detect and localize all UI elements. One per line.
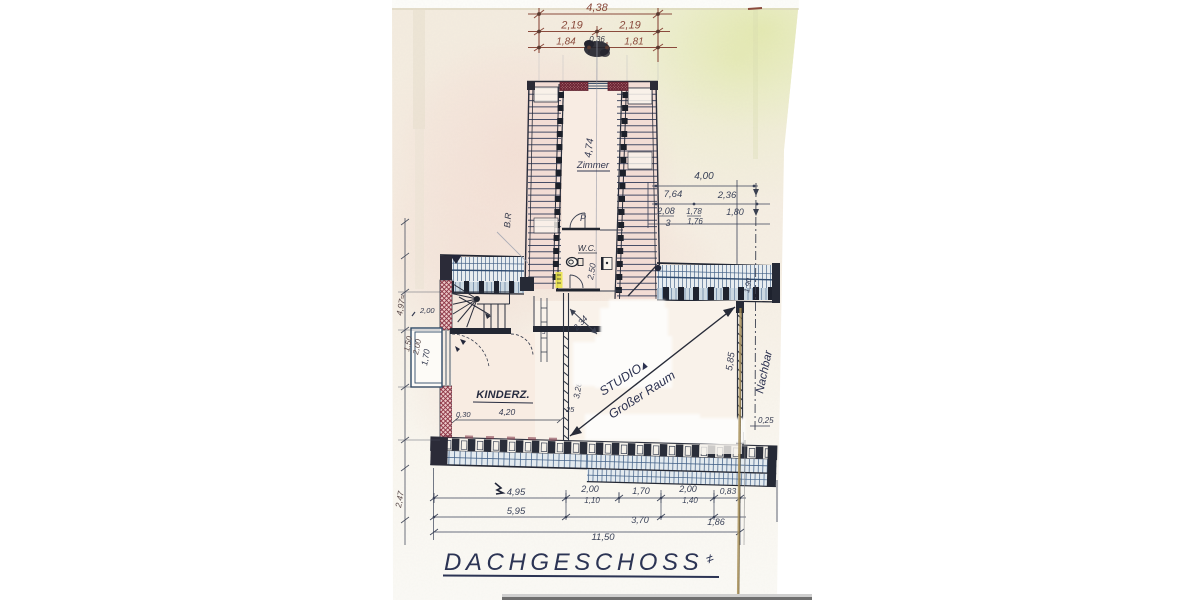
svg-text:2,19: 2,19 — [560, 20, 582, 32]
svg-text:KINDERZ.: KINDERZ. — [476, 389, 530, 401]
svg-text:11,50: 11,50 — [591, 532, 615, 543]
svg-text:2,19: 2,19 — [618, 20, 640, 32]
svg-text:2,00: 2,00 — [419, 306, 435, 315]
svg-text:1,81: 1,81 — [624, 37, 643, 48]
svg-text:1,76: 1,76 — [687, 217, 703, 226]
svg-text:0,25: 0,25 — [758, 416, 774, 425]
svg-text:2,00: 2,00 — [678, 484, 697, 494]
svg-text:1,84: 1,84 — [556, 37, 576, 48]
svg-text:0,83: 0,83 — [720, 486, 737, 496]
svg-text:3: 3 — [665, 218, 670, 228]
svg-text:B.R: B.R — [502, 212, 513, 228]
svg-text:2,36: 2,36 — [717, 190, 737, 201]
svg-text:Zimmer: Zimmer — [576, 160, 610, 171]
svg-text:4,00: 4,00 — [694, 171, 714, 182]
svg-text:25: 25 — [565, 405, 575, 414]
svg-text:2,08: 2,08 — [656, 206, 675, 216]
svg-text:DACHGESCHOSS: DACHGESCHOSS — [444, 549, 703, 576]
svg-text:3,70: 3,70 — [631, 515, 649, 525]
svg-text:2,00: 2,00 — [580, 484, 599, 494]
svg-text:1,80: 1,80 — [726, 207, 744, 217]
svg-text:W.C.: W.C. — [578, 243, 597, 253]
svg-text:5,95: 5,95 — [507, 506, 526, 517]
svg-text:1,40: 1,40 — [682, 496, 698, 505]
svg-text:1,70: 1,70 — [632, 486, 650, 496]
svg-text:4,95: 4,95 — [507, 487, 526, 498]
svg-text:1,86: 1,86 — [707, 517, 725, 527]
svg-text:1,78: 1,78 — [686, 207, 702, 216]
svg-text:4,20: 4,20 — [499, 407, 516, 417]
svg-text:7,64: 7,64 — [664, 189, 683, 200]
svg-text:4,38: 4,38 — [586, 2, 608, 14]
svg-text:1,10: 1,10 — [584, 496, 600, 505]
